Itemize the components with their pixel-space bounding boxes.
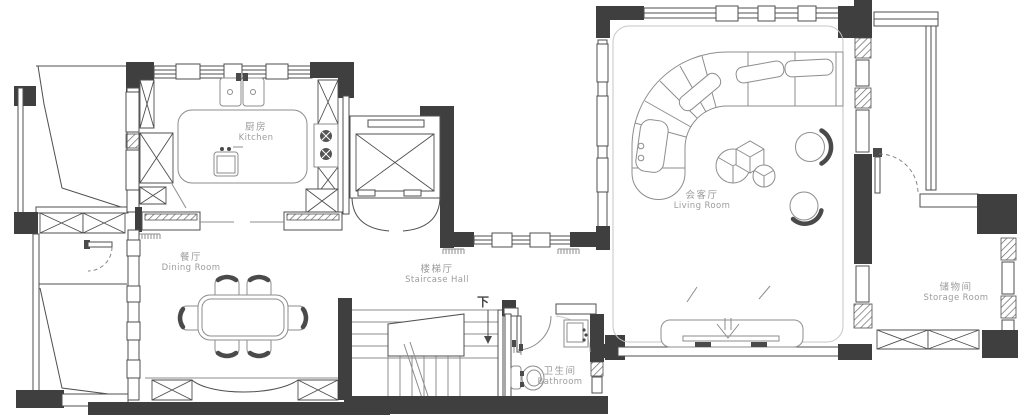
- label-kitchen-en: Kitchen: [239, 133, 274, 143]
- washbasin: [564, 320, 588, 347]
- bathroom: [344, 300, 608, 414]
- entry-marks: [687, 286, 770, 302]
- stairs-down-arrow: [484, 310, 492, 344]
- floor-plan: 厨房 Kitchen 餐厅 Dining Room 楼梯厅 Staircase …: [0, 0, 1024, 418]
- label-storage-zh: 储物间: [924, 282, 989, 293]
- label-staircase-zh: 楼梯厅: [405, 264, 469, 275]
- coffee-tables: [716, 141, 775, 187]
- elevator: [350, 106, 454, 248]
- label-living-en: Living Room: [674, 201, 731, 211]
- terrace-door: [84, 240, 112, 271]
- arch-right: [403, 198, 440, 231]
- dining-table: [198, 295, 288, 340]
- storage-door: [873, 148, 918, 193]
- staircase: [338, 298, 503, 400]
- label-bathroom: 卫生间 Bathroom: [538, 366, 583, 388]
- kitchen-island: [178, 110, 307, 183]
- label-storage-en: Storage Room: [924, 293, 989, 303]
- label-bathroom-zh: 卫生间: [538, 366, 583, 377]
- storage-room: [877, 194, 1018, 358]
- stairs-down-label: 下: [477, 293, 489, 310]
- left-terrace-upper: [14, 66, 128, 234]
- armchair: [790, 192, 821, 224]
- label-kitchen: 厨房 Kitchen: [239, 122, 274, 144]
- arch-left: [352, 198, 389, 231]
- kitchen-sliding-door: [135, 207, 342, 239]
- corridor-window-wall: [440, 232, 604, 254]
- left-terrace-lower: [16, 234, 128, 408]
- tv-console: [661, 318, 803, 347]
- label-storage-room: 储物间 Storage Room: [924, 282, 989, 304]
- label-staircase-hall: 楼梯厅 Staircase Hall: [405, 264, 469, 286]
- label-kitchen-zh: 厨房: [239, 122, 274, 133]
- dining-table-set: [179, 276, 307, 357]
- label-dining-room: 餐厅 Dining Room: [162, 252, 221, 274]
- kitchen-stove: [314, 124, 338, 167]
- label-dining-en: Dining Room: [162, 263, 221, 273]
- floor-plan-drawing: [0, 0, 1024, 418]
- armchair: [796, 131, 832, 164]
- label-dining-zh: 餐厅: [162, 252, 221, 263]
- cabinet-door-swing: [172, 184, 186, 208]
- label-staircase-en: Staircase Hall: [405, 275, 469, 285]
- label-living-zh: 会客厅: [674, 190, 731, 201]
- label-living-room: 会客厅 Living Room: [674, 190, 731, 212]
- label-bathroom-en: Bathroom: [538, 377, 583, 387]
